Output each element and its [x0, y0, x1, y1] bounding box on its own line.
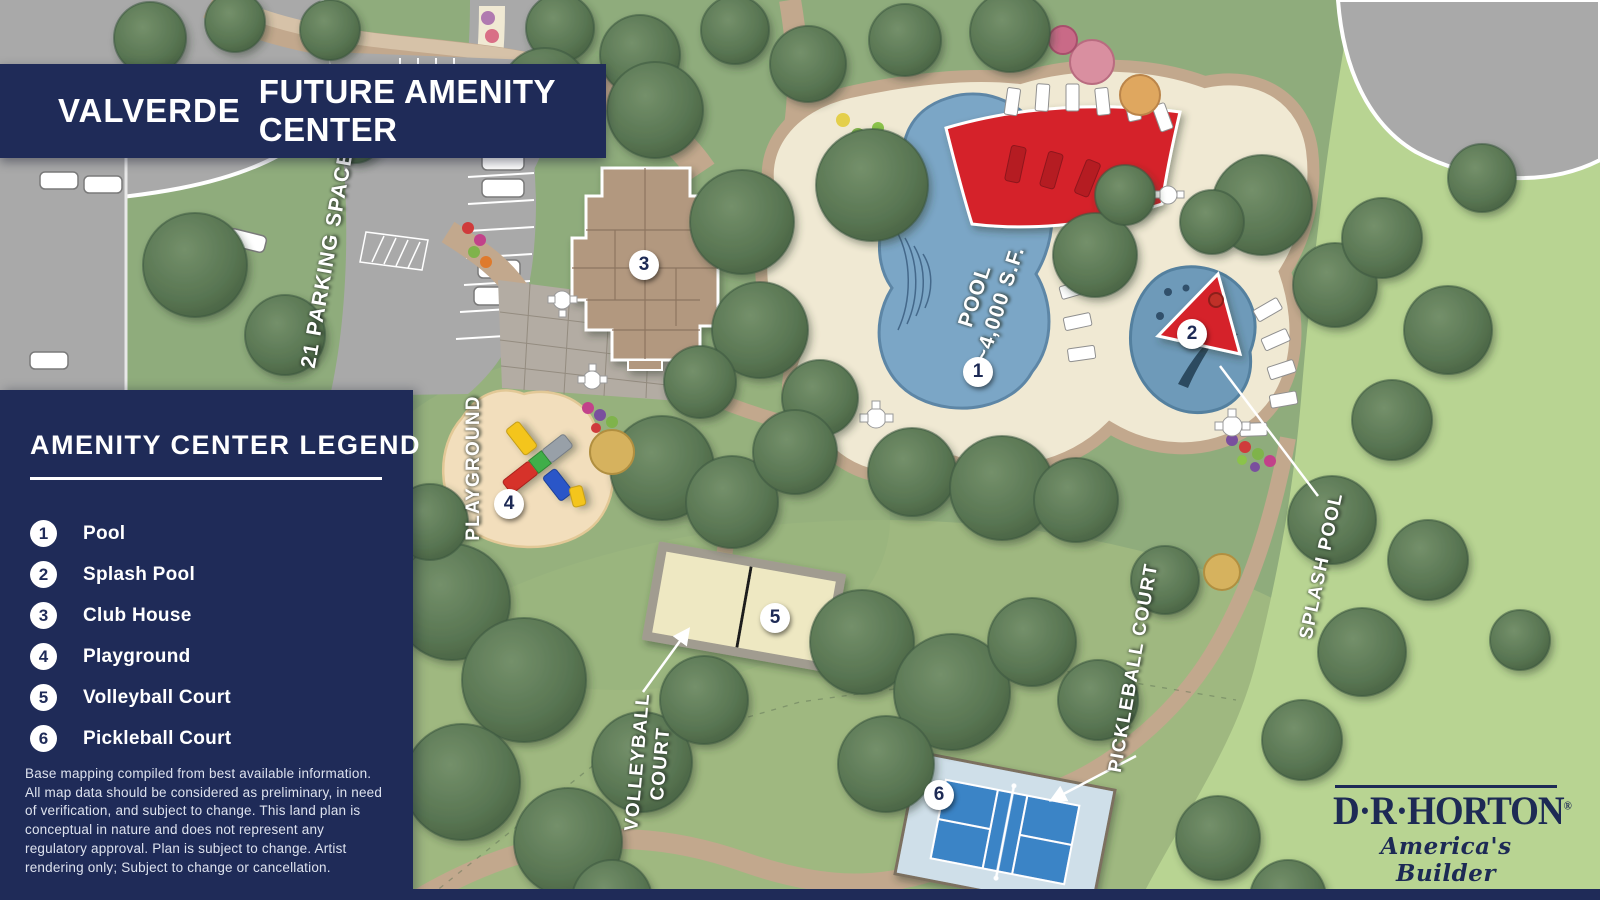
- community-name: VALVERDE: [58, 92, 241, 130]
- legend-item-number: 5: [30, 684, 57, 711]
- legend-item-number: 2: [30, 561, 57, 588]
- legend-item-pool: 1 Pool: [30, 520, 385, 547]
- splash-feature-ring: [1209, 293, 1223, 307]
- fall-tree-2: [1204, 554, 1240, 590]
- map-marker-number: 3: [639, 254, 650, 276]
- map-marker-club-house: 3: [629, 250, 659, 280]
- legend-item-label: Volleyball Court: [83, 687, 231, 709]
- legend-items: 1 Pool 2 Splash Pool 3 Club House 4 Play…: [30, 520, 385, 752]
- registered-mark: ®: [1564, 800, 1571, 813]
- legend-item-pickleball-court: 6 Pickleball Court: [30, 725, 385, 752]
- map-marker-number: 6: [934, 784, 945, 806]
- map-marker-number: 2: [1187, 323, 1198, 345]
- logo-brand-text: D·R·HORTON: [1333, 789, 1564, 833]
- playground-label: PLAYGROUND: [463, 395, 485, 540]
- legend-item-label: Club House: [83, 605, 192, 627]
- logo-rule: [1335, 785, 1557, 788]
- legend-item-number: 4: [30, 643, 57, 670]
- dr-horton-logo: D·R·HORTON® America's Builder: [1333, 785, 1559, 887]
- legend-item-label: Pool: [83, 523, 125, 545]
- legend-item-number: 6: [30, 725, 57, 752]
- map-marker-number: 5: [770, 607, 781, 629]
- map-marker-splash-pool: 2: [1177, 319, 1207, 349]
- disclaimer-text: Base mapping compiled from best availabl…: [25, 765, 387, 878]
- amenity-center-site-plan: 21 PARKING SPACES PLAYGROUND POOL ~4,000…: [0, 0, 1600, 900]
- legend-panel: AMENITY CENTER LEGEND 1 Pool 2 Splash Po…: [0, 390, 413, 900]
- map-marker-volleyball-court: 5: [760, 603, 790, 633]
- map-marker-playground: 4: [494, 489, 524, 519]
- map-marker-number: 1: [973, 361, 984, 383]
- legend-item-number: 3: [30, 602, 57, 629]
- legend-rule: [30, 477, 382, 480]
- legend-item-club-house: 3 Club House: [30, 602, 385, 629]
- logo-brand: D·R·HORTON®: [1333, 792, 1559, 832]
- logo-tagline: America's Builder: [1333, 833, 1559, 887]
- legend-title: AMENITY CENTER LEGEND: [30, 430, 385, 461]
- title-banner: VALVERDE FUTURE AMENITY CENTER: [0, 64, 606, 158]
- map-marker-pool: 1: [963, 357, 993, 387]
- legend-item-label: Splash Pool: [83, 564, 195, 586]
- legend-item-number: 1: [30, 520, 57, 547]
- legend-item-splash-pool: 2 Splash Pool: [30, 561, 385, 588]
- map-marker-number: 4: [504, 493, 515, 515]
- banner-subtitle: FUTURE AMENITY CENTER: [259, 73, 606, 149]
- legend-item-volleyball-court: 5 Volleyball Court: [30, 684, 385, 711]
- fall-tree: [590, 430, 634, 474]
- legend-item-label: Playground: [83, 646, 191, 668]
- bottom-border-strip: [0, 889, 1600, 900]
- legend-item-playground: 4 Playground: [30, 643, 385, 670]
- map-marker-pickleball-court: 6: [924, 780, 954, 810]
- legend-item-label: Pickleball Court: [83, 728, 231, 750]
